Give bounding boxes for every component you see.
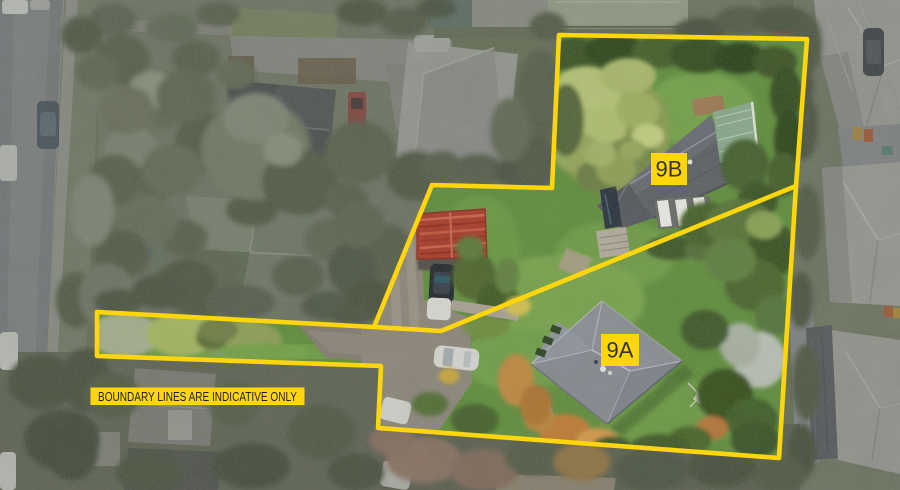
svg-text:BOUNDARY LINES ARE INDICATIVE: BOUNDARY LINES ARE INDICATIVE ONLY <box>98 389 297 404</box>
svg-text:9B: 9B <box>656 157 683 182</box>
svg-text:9A: 9A <box>607 338 634 363</box>
